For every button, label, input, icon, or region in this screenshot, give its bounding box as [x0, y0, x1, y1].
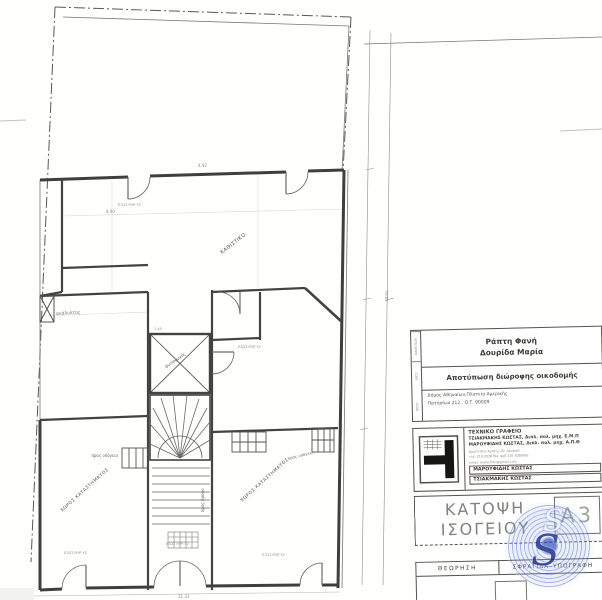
- shop-left-label: ΧΩΡΟΣ ΚΑΤΑΣΤΗΜΑΤΟΣ: [59, 467, 110, 514]
- office-info: ΤΕΧΝΙΚΟ ΓΡΑΦΕΙΟ ΤΣΙΑΚΜΑΚΗΣ ΚΩΣΤΑΣ, Διπλ.…: [464, 425, 602, 490]
- door-label-shopL: ΕΞΩΤ.ΘΥΡ.Υ2: [64, 551, 87, 555]
- door-label-top: ΕΞΩΤ.ΘΥΡ.Υ2: [118, 203, 141, 207]
- watermark-seal: S S: [505, 502, 593, 590]
- open-area-label: ακάλυπτος: [56, 309, 81, 317]
- dim-core: 1.40: [154, 327, 162, 331]
- office-logo: [413, 428, 465, 491]
- door-label-shopR: ΕΞΩΤ.ΘΥΡ.Υ2: [262, 553, 285, 557]
- to-upper-floor-label: προς όροφο: [200, 488, 205, 512]
- strip-label-owners: ΙΔΙΟΚΤΗΣΙΑ: [411, 331, 421, 362]
- dim-bottom: 11.33: [178, 594, 190, 599]
- basement-stair-left: [122, 448, 148, 468]
- dim-left: 4.90: [106, 209, 115, 214]
- door-labels: ΕΞΩΤ.ΘΥΡ.Υ2 ΕΣΩΤ.ΘΥΡ.Υ2 ΕΞΩΤ.ΘΥΡ.Υ2 ΕΞΩΤ…: [64, 203, 285, 557]
- drawing-sheet: ΚΑΘΙΣΤΙΚΟ φωταγωγός ακάλυπτος ΧΩΡΟΣ ΚΑΤΑ…: [0, 0, 602, 600]
- light-well: [150, 334, 210, 393]
- project-location: Δήμος Αθηναίων,Πλατεία Αμερικής Πατησίων…: [422, 387, 602, 421]
- basement-stair-right: [232, 428, 334, 452]
- door-label-entry: ΕΞΩΤ.ΘΥΡ.Υ2: [166, 542, 189, 546]
- door-label-int: ΕΣΩΤ.ΘΥΡ.Υ2: [238, 345, 261, 349]
- plan-labels: ΚΑΘΙΣΤΙΚΟ φωταγωγός ακάλυπτος ΧΩΡΟΣ ΚΑΤΑ…: [56, 232, 315, 513]
- engineer-signature-2: ΤΣΙΑΚΜΑΚΗΣ ΚΩΣΤΑΣ: [469, 473, 601, 485]
- office-logo-graphic: [418, 435, 459, 484]
- stamp-placeholder: [495, 580, 528, 600]
- dimension-chains: [360, 30, 394, 585]
- door-arcs: [62, 172, 322, 589]
- dim-right-chain: 13.01: [384, 290, 389, 302]
- building-walls: [40, 170, 344, 590]
- to-basement-right-label: προς υπόγειο: [287, 450, 314, 461]
- office-box: ΤΕΧΝΙΚΟ ΓΡΑΦΕΙΟ ΤΣΙΑΚΜΑΚΗΣ ΚΩΣΤΑΣ, Διπλ.…: [412, 424, 602, 492]
- site-boundary: [31, 7, 351, 562]
- interior-walls: [40, 180, 342, 590]
- project-info-main: Ράπτη Φανή Δουρίδα Μαρία Αποτύπωση διώρο…: [421, 327, 602, 421]
- living-room-label: ΚΑΘΙΣΤΙΚΟ: [220, 232, 248, 256]
- to-basement-left-label: προς υπόγειο: [91, 453, 118, 458]
- wall-niche: [40, 296, 54, 322]
- strip-label-location: ΘΕΣΗ: [412, 391, 422, 421]
- winder-stair: [150, 395, 210, 460]
- project-info-box: ΙΔΙΟΚΤΗΣΙΑ ΕΡΓΟ ΘΕΣΗ Ράπτη Φανή Δουρίδα …: [410, 326, 602, 422]
- shop-right-label: ΧΩΡΟΣ ΚΑΤΑΣΤΗΜΑΤΟΣ: [239, 457, 290, 504]
- watermark-letter-large: S: [531, 526, 560, 575]
- strip-label-project: ΕΡΓΟ: [412, 361, 422, 392]
- owner-name-2: Δουρίδα Μαρία: [480, 346, 544, 359]
- dim-top: 4.92: [198, 163, 207, 168]
- owner-names: Ράπτη Φανή Δουρίδα Μαρία: [421, 327, 602, 368]
